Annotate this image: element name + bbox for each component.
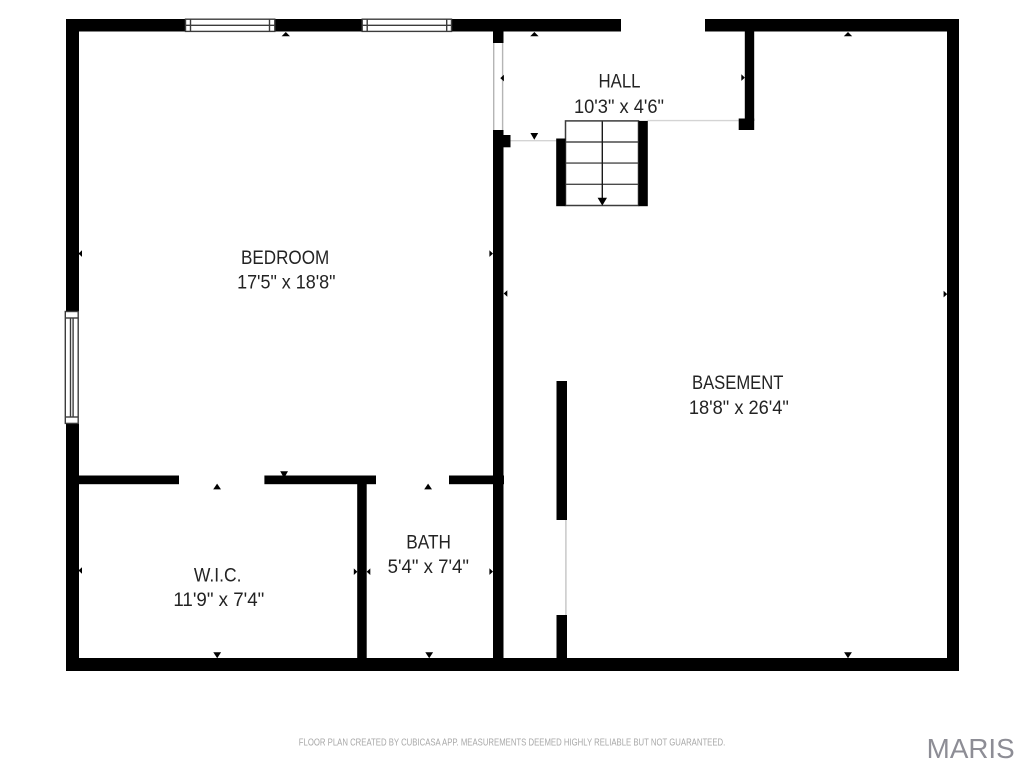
svg-text:FLOOR PLAN CREATED BY CUBICASA: FLOOR PLAN CREATED BY CUBICASA APP. MEAS… bbox=[299, 736, 726, 748]
svg-text:18'8" x 26'4": 18'8" x 26'4" bbox=[689, 398, 789, 419]
svg-text:W.I.C.: W.I.C. bbox=[194, 566, 242, 587]
svg-text:5'4" x 7'4": 5'4" x 7'4" bbox=[388, 557, 469, 578]
svg-text:MARIS: MARIS bbox=[927, 733, 1015, 764]
svg-text:HALL: HALL bbox=[599, 72, 641, 93]
svg-text:BATH: BATH bbox=[406, 532, 451, 553]
svg-text:11'9" x 7'4": 11'9" x 7'4" bbox=[173, 590, 264, 611]
svg-text:10'3" x 4'6": 10'3" x 4'6" bbox=[574, 97, 664, 118]
svg-text:BASEMENT: BASEMENT bbox=[692, 373, 784, 394]
svg-text:BEDROOM: BEDROOM bbox=[241, 248, 329, 269]
svg-text:17'5" x 18'8": 17'5" x 18'8" bbox=[237, 272, 335, 293]
